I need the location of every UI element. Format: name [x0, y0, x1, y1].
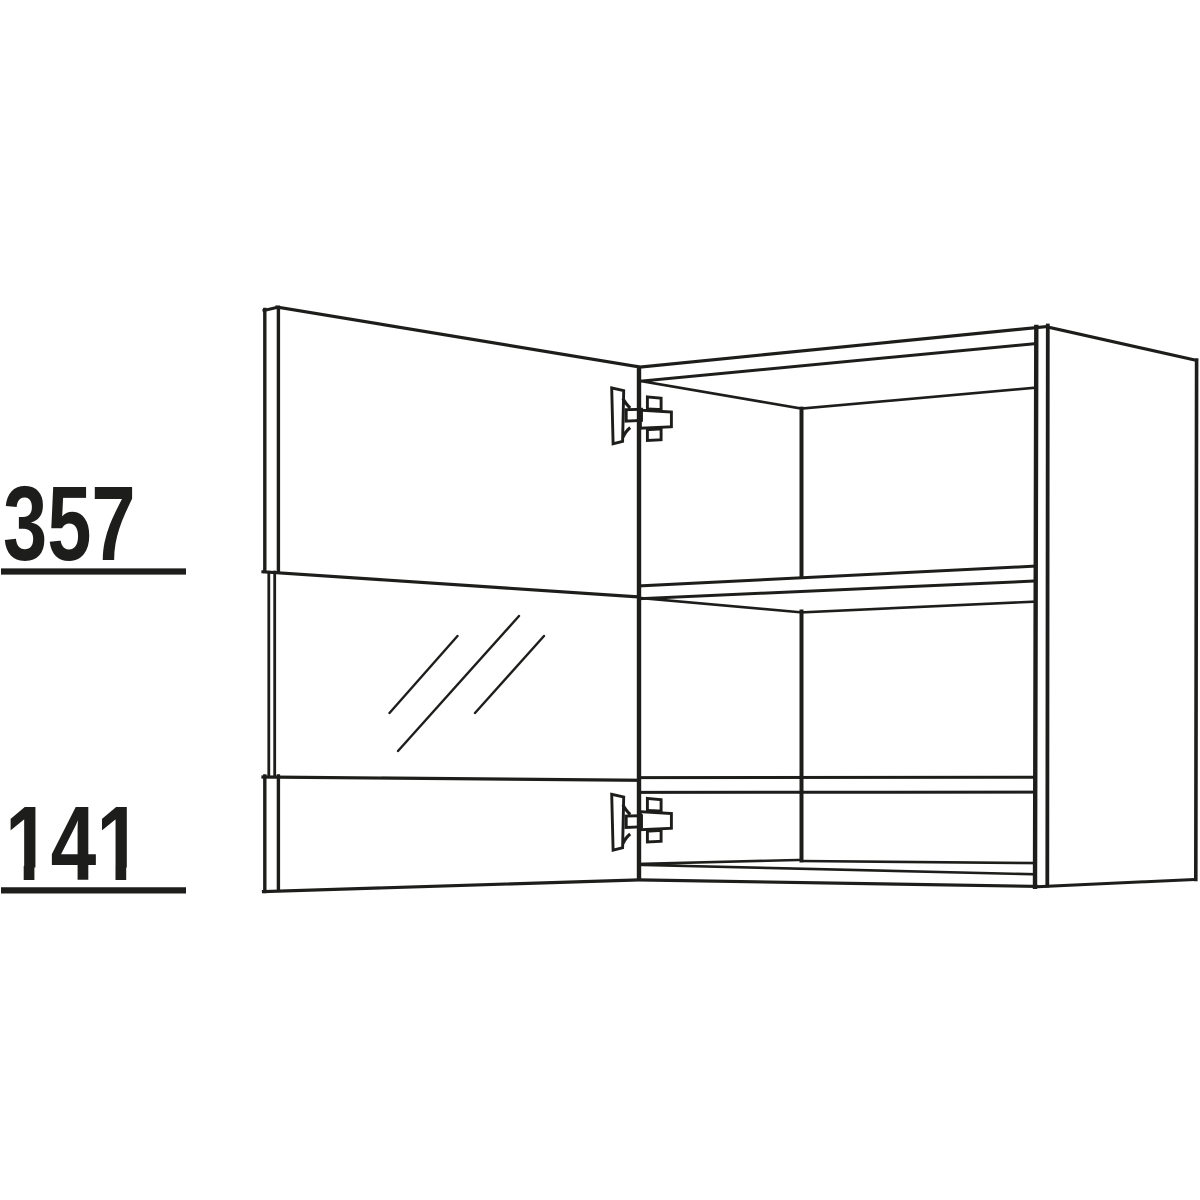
svg-text:357: 357	[3, 464, 136, 583]
svg-text:141: 141	[5, 785, 142, 903]
